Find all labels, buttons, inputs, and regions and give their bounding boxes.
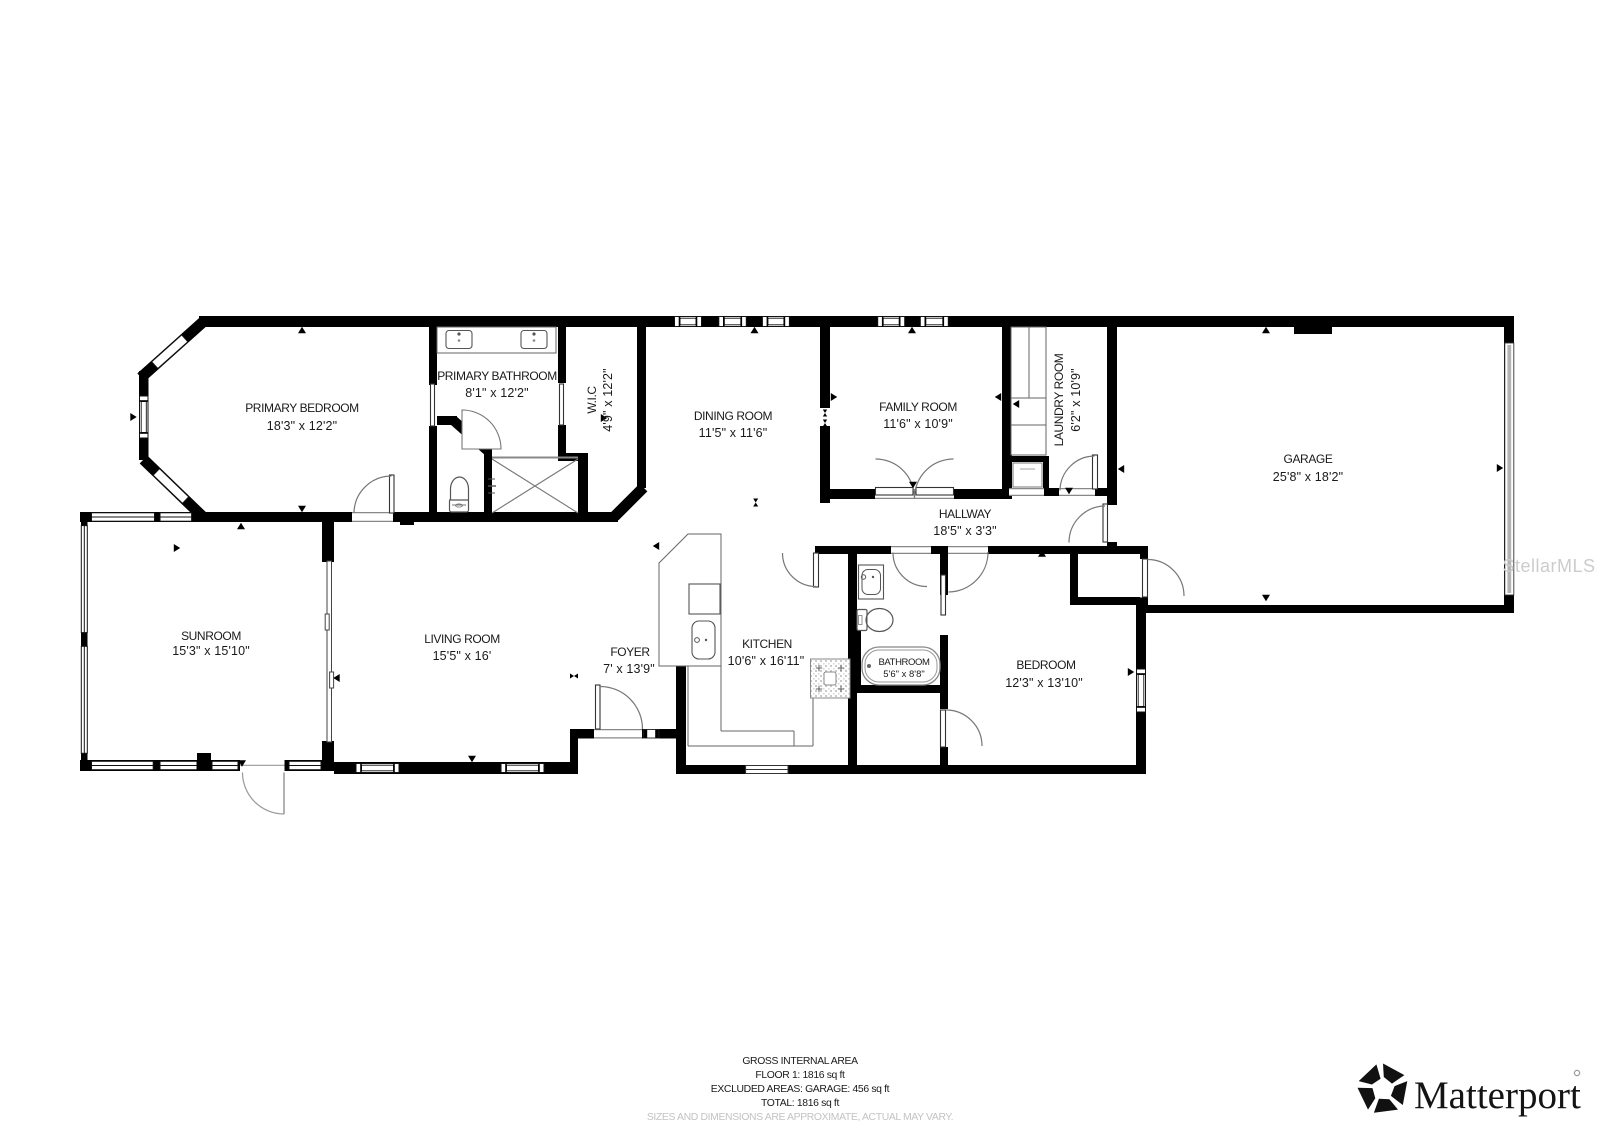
svg-text:7' x 13'9": 7' x 13'9" [603,662,655,676]
svg-text:25'8" x 18'2": 25'8" x 18'2" [1273,470,1344,484]
svg-text:SIZES AND DIMENSIONS ARE APPRO: SIZES AND DIMENSIONS ARE APPROXIMATE, AC… [647,1112,953,1123]
svg-text:SUNROOM: SUNROOM [181,629,241,643]
svg-text:EXCLUDED AREAS: GARAGE: 456 sq: EXCLUDED AREAS: GARAGE: 456 sq ft [711,1084,890,1095]
svg-text:GROSS INTERNAL AREA: GROSS INTERNAL AREA [742,1056,858,1067]
svg-text:PRIMARY BEDROOM: PRIMARY BEDROOM [245,401,359,415]
svg-text:18'5" x 3'3": 18'5" x 3'3" [933,524,996,538]
svg-text:4'9" x 12'2": 4'9" x 12'2" [601,368,615,431]
svg-text:6'2" x 10'9": 6'2" x 10'9" [1069,368,1083,431]
svg-text:BATHROOM: BATHROOM [879,657,930,668]
svg-text:DINING ROOM: DINING ROOM [694,409,773,423]
svg-text:15'3" x 15'10": 15'3" x 15'10" [172,644,250,658]
svg-text:LAUNDRY ROOM: LAUNDRY ROOM [1052,353,1066,446]
svg-text:10'6" x 16'11": 10'6" x 16'11" [728,654,805,668]
svg-text:5'6" x 8'8": 5'6" x 8'8" [883,669,925,680]
svg-text:GARAGE: GARAGE [1284,452,1333,466]
svg-text:BEDROOM: BEDROOM [1016,658,1076,672]
svg-text:TOTAL: 1816 sq ft: TOTAL: 1816 sq ft [761,1098,839,1109]
svg-text:KITCHEN: KITCHEN [742,637,792,651]
svg-text:StellarMLS: StellarMLS [1502,556,1595,576]
svg-text:11'6" x 10'9": 11'6" x 10'9" [883,417,953,431]
svg-text:FOYER: FOYER [610,645,650,659]
svg-text:11'5" x 11'6": 11'5" x 11'6" [699,426,768,440]
svg-text:Matterport: Matterport [1414,1074,1581,1117]
svg-text:18'3" x 12'2": 18'3" x 12'2" [267,419,338,433]
svg-text:HALLWAY: HALLWAY [939,507,992,521]
svg-text:PRIMARY BATHROOM: PRIMARY BATHROOM [437,369,557,383]
svg-text:8'1" x 12'2": 8'1" x 12'2" [465,386,528,400]
svg-text:LIVING ROOM: LIVING ROOM [424,632,500,646]
svg-text:15'5" x 16': 15'5" x 16' [433,649,492,663]
svg-text:FAMILY ROOM: FAMILY ROOM [879,400,957,414]
svg-text:W.I.C: W.I.C [585,386,599,414]
svg-text:FLOOR 1: 1816 sq ft: FLOOR 1: 1816 sq ft [755,1070,845,1081]
svg-text:12'3" x 13'10": 12'3" x 13'10" [1005,676,1083,690]
